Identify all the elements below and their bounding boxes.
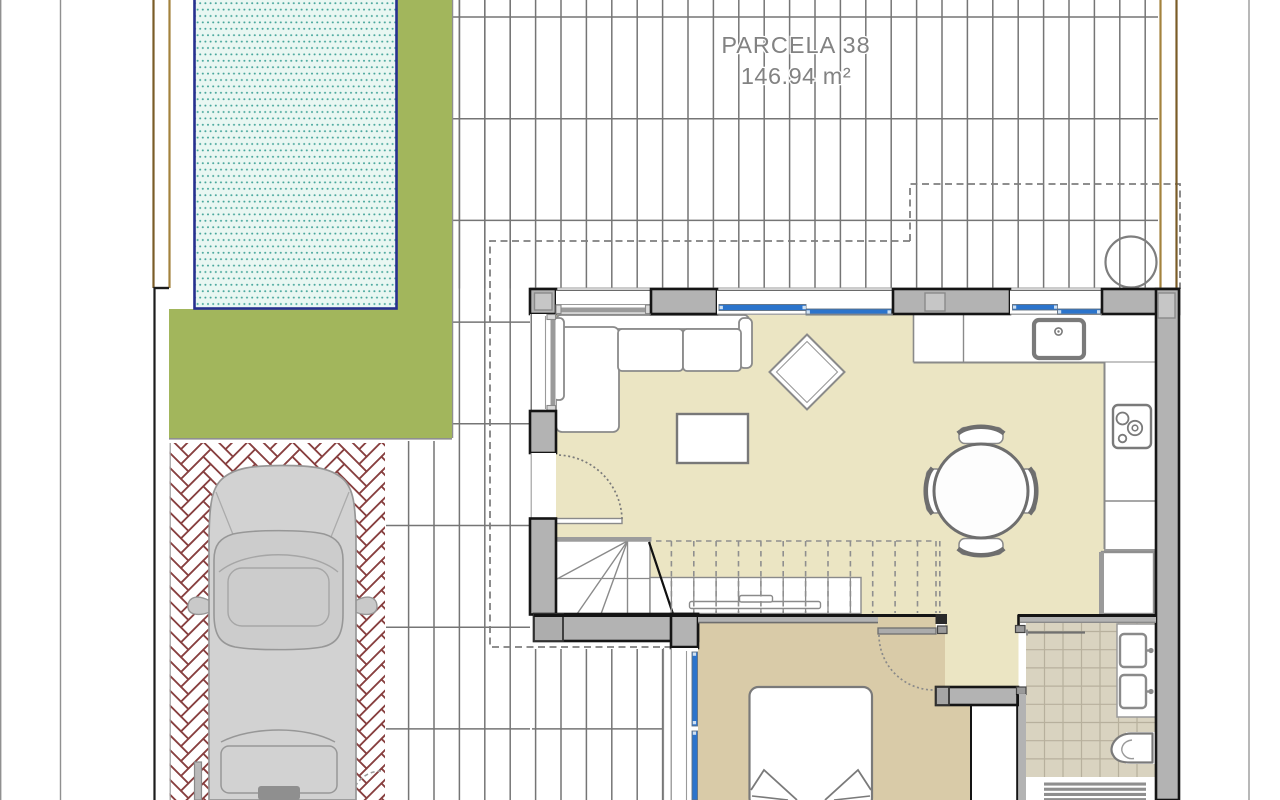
svg-text:PARCELA 38: PARCELA 38	[721, 32, 870, 58]
svg-text:146.94 m²: 146.94 m²	[741, 63, 851, 89]
